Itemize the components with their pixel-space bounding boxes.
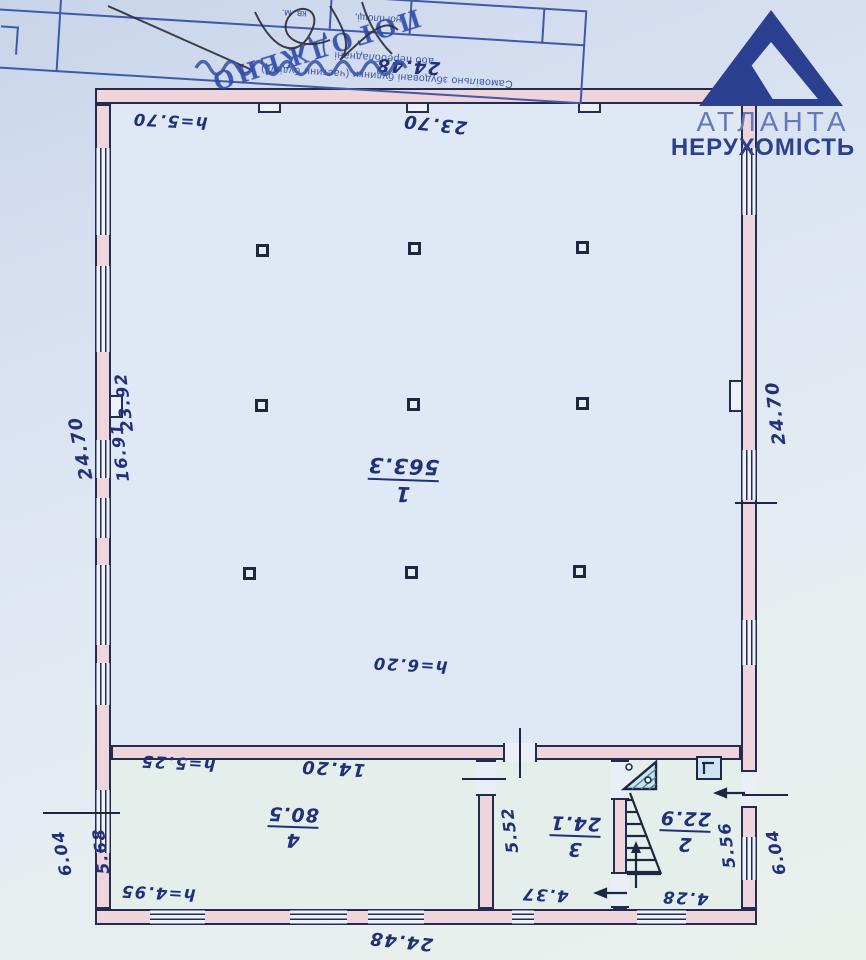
scanned-floor-plan: 24.48 23.70 h=5.70 24.70 23.92 16.91 24.… <box>0 0 866 960</box>
logo-triangle-icon <box>699 10 843 106</box>
logo-brand-subtitle: НЕРУХОМІСТЬ <box>660 134 866 162</box>
